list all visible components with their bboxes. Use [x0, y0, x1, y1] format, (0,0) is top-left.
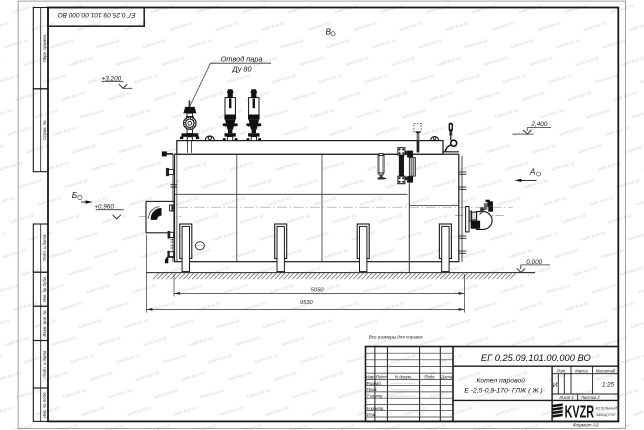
svg-text:+3,200: +3,200 — [102, 76, 122, 83]
svg-text:Инв. № подл.: Инв. № подл. — [42, 391, 47, 418]
svg-text:ЕГ 0.25.09.101.00.000 ВО: ЕГ 0.25.09.101.00.000 ВО — [481, 353, 591, 363]
svg-text:+0,960: +0,960 — [94, 203, 114, 210]
svg-text:Подп.: Подп. — [424, 374, 435, 379]
svg-text:Утв.: Утв. — [367, 412, 377, 417]
svg-text:Подп. и дата: Подп. и дата — [42, 350, 47, 378]
svg-text:Масса: Масса — [575, 368, 588, 373]
svg-text:Б: Б — [72, 191, 78, 200]
svg-text:Подп. и дата: Подп. и дата — [42, 234, 47, 262]
svg-text:Формат А3: Формат А3 — [573, 422, 599, 427]
svg-text:Лист 1: Лист 1 — [559, 395, 574, 400]
svg-text:Инв. № дубл.: Инв. № дубл. — [42, 276, 47, 302]
svg-text:Котел паровой: Котел паровой — [476, 377, 525, 385]
svg-text:Листов 2: Листов 2 — [580, 395, 600, 400]
svg-text:Т.контр.: Т.контр. — [367, 393, 384, 398]
svg-text:Отвод пара: Отвод пара — [221, 54, 263, 63]
svg-text:А: А — [529, 167, 536, 176]
svg-text:Лит.: Лит. — [556, 368, 567, 373]
svg-text:КОТЕЛЬНЫЙ: КОТЕЛЬНЫЙ — [596, 406, 618, 410]
svg-text:Дата: Дата — [440, 374, 453, 379]
svg-text:Е -2,5-0,9-170- ГЛЖ ( Ж ): Е -2,5-0,9-170- ГЛЖ ( Ж ) — [464, 388, 542, 395]
svg-text:Взам. инв. №: Взам. инв. № — [42, 310, 47, 337]
svg-text:Масштаб: Масштаб — [596, 368, 616, 373]
svg-text:Пров.: Пров. — [367, 387, 378, 392]
svg-text:Перв. примен.: Перв. примен. — [42, 34, 47, 63]
svg-text:Справ. №: Справ. № — [42, 120, 47, 140]
svg-text:0,000: 0,000 — [526, 259, 542, 266]
svg-text:2,400: 2,400 — [530, 121, 547, 128]
svg-text:KVZR: KVZR — [565, 401, 595, 421]
svg-text:В: В — [326, 27, 332, 36]
svg-text:Ду 80: Ду 80 — [231, 64, 251, 73]
svg-text:N докум.: N докум. — [395, 374, 412, 379]
svg-text:Разраб.: Разраб. — [367, 381, 382, 386]
svg-text:5050: 5050 — [311, 288, 325, 294]
svg-text:9530: 9530 — [300, 300, 314, 306]
svg-text:1:25: 1:25 — [602, 382, 615, 389]
svg-text:ЕГ 0.25.09.101.00.000 ВО: ЕГ 0.25.09.101.00.000 ВО — [58, 11, 136, 18]
svg-text:Изм.: Изм. — [366, 374, 375, 379]
svg-text:Все размеры для справок: Все размеры для справок — [369, 335, 424, 340]
svg-text:Лист: Лист — [375, 374, 387, 379]
svg-text:И: И — [553, 382, 558, 389]
svg-text:ЗАВОД РЭП: ЗАВОД РЭП — [596, 413, 616, 417]
svg-text:Н.контр.: Н.контр. — [367, 406, 385, 411]
